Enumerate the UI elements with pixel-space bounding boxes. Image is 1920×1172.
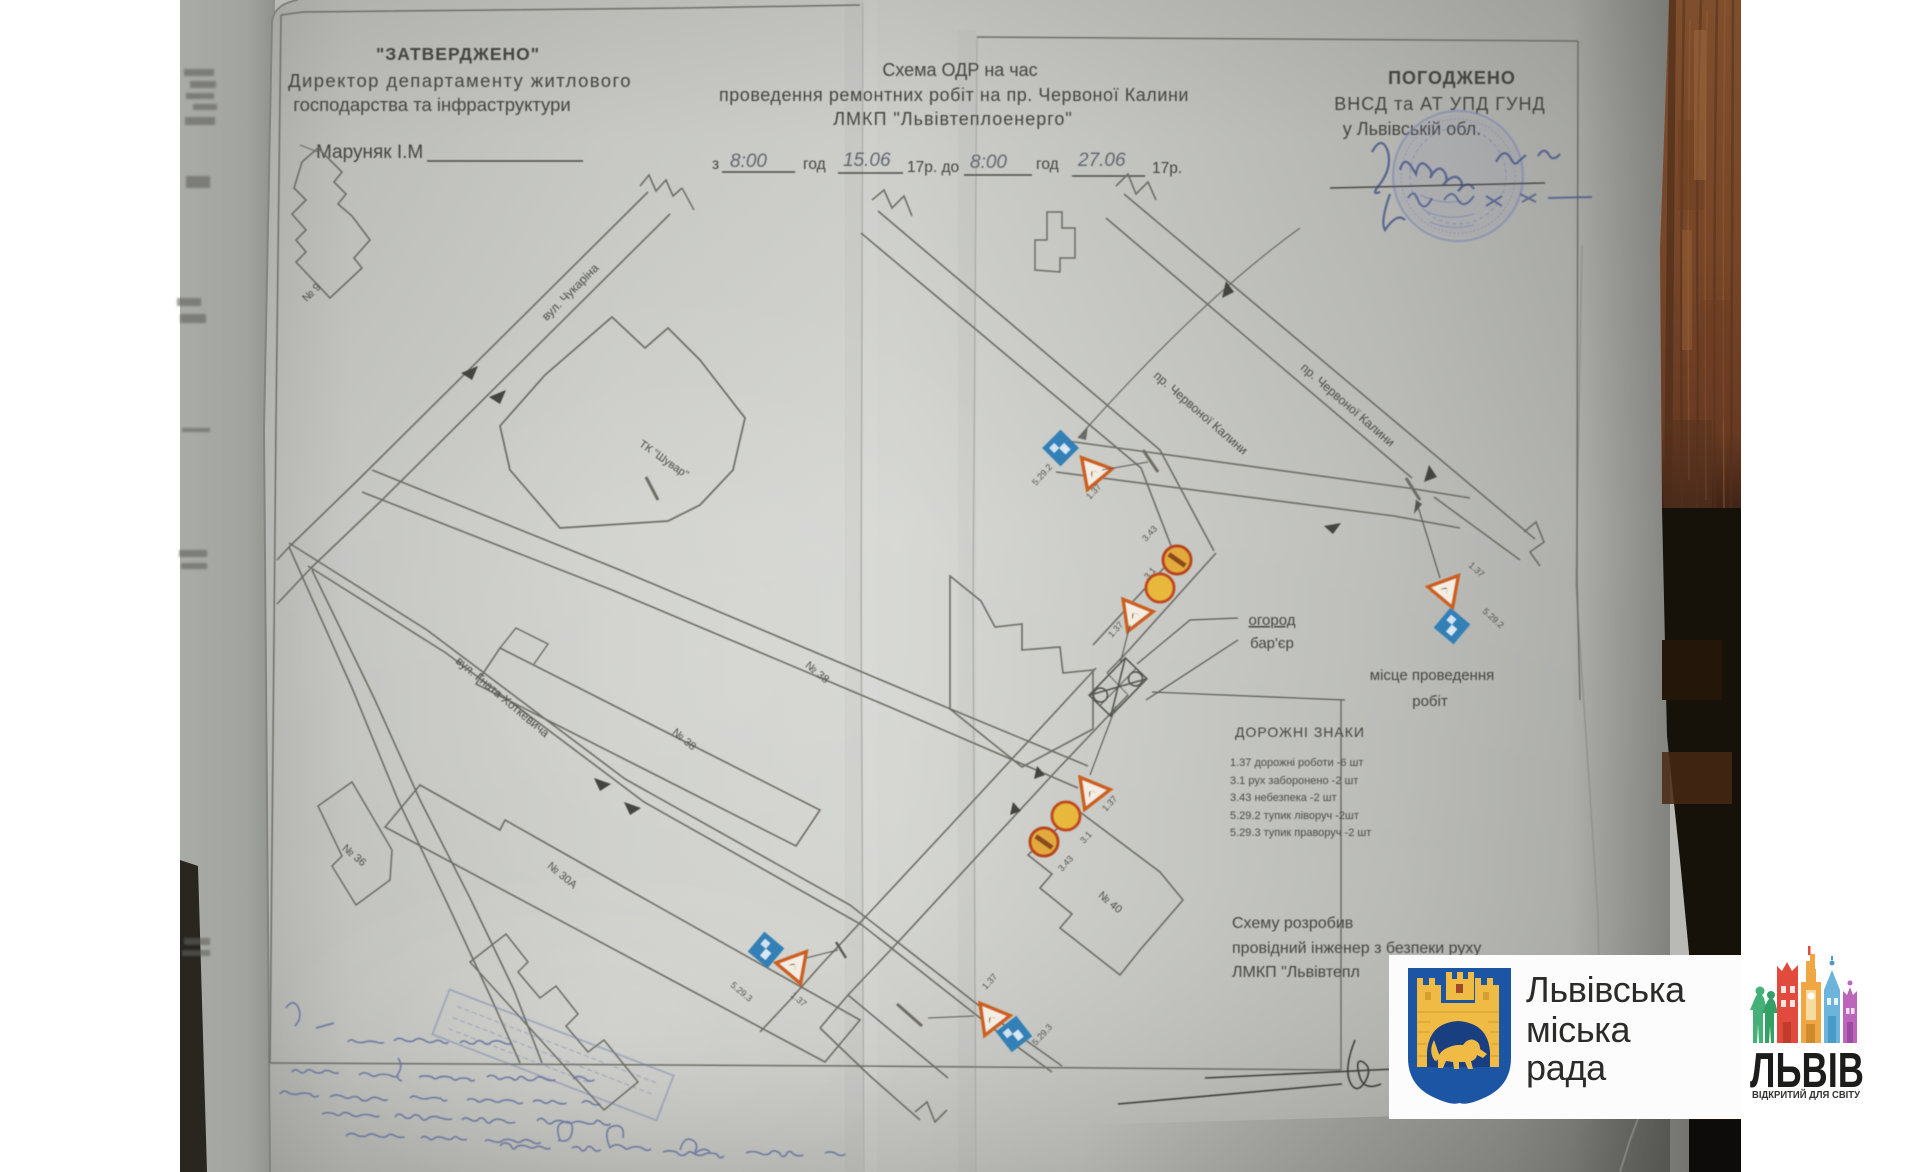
svg-text:міська: міська	[1526, 1009, 1632, 1050]
svg-text:провідний інженер з безпеки ру: провідний інженер з безпеки руху	[1232, 940, 1481, 957]
svg-text:5.29.2 тупик ліворуч -2шт: 5.29.2 тупик ліворуч -2шт	[1230, 810, 1359, 822]
svg-text:17р.: 17р.	[1152, 160, 1182, 177]
svg-text:ЛМКП "Львівтеплоенерго": ЛМКП "Львівтеплоенерго"	[833, 109, 1073, 129]
svg-text:ЛМКП "Львівтепл: ЛМКП "Львівтепл	[1232, 964, 1360, 981]
svg-text:місце проведення: місце проведення	[1370, 667, 1494, 684]
svg-text:3.43 небезпека -2 шт: 3.43 небезпека -2 шт	[1230, 792, 1337, 804]
svg-text:ВІДКРИТИЙ ДЛЯ СВІТУ: ВІДКРИТИЙ ДЛЯ СВІТУ	[1752, 1088, 1861, 1101]
svg-text:ДОРОЖНІ ЗНАКИ: ДОРОЖНІ ЗНАКИ	[1235, 724, 1365, 740]
svg-text:рада: рада	[1526, 1047, 1607, 1088]
svg-text:господарства та інфраструктури: господарства та інфраструктури	[293, 94, 570, 115]
svg-text:8:00: 8:00	[970, 152, 1007, 173]
svg-text:5.29.3 тупик праворуч -2 шт: 5.29.3 тупик праворуч -2 шт	[1230, 827, 1371, 839]
svg-text:огород: огород	[1249, 612, 1296, 629]
svg-text:27.06: 27.06	[1077, 150, 1126, 171]
svg-text:Львівська: Львівська	[1526, 969, 1686, 1010]
svg-text:ПОГОДЖЕНО: ПОГОДЖЕНО	[1388, 68, 1516, 88]
svg-text:год: год	[803, 156, 826, 173]
svg-text:бар'єр: бар'єр	[1250, 635, 1294, 652]
svg-text:Директор департаменту житловог: Директор департаменту житлового	[288, 70, 632, 91]
svg-text:з: з	[712, 156, 719, 173]
svg-text:проведення ремонтних робіт на: проведення ремонтних робіт на пр. Червон…	[719, 85, 1189, 105]
svg-text:Схема ОДР на час: Схема ОДР на час	[882, 60, 1037, 80]
svg-text:3.1 рух заборонено -2 шт: 3.1 рух заборонено -2 шт	[1230, 775, 1358, 787]
svg-text:"ЗАТВЕРДЖЕНО": "ЗАТВЕРДЖЕНО"	[376, 44, 540, 64]
svg-text:Схему розробив: Схему розробив	[1232, 915, 1353, 932]
svg-text:робіт: робіт	[1412, 693, 1448, 710]
svg-text:1.37 дорожні роботи -6 шт: 1.37 дорожні роботи -6 шт	[1230, 757, 1363, 769]
svg-text:8:00: 8:00	[730, 151, 767, 172]
svg-text:год: год	[1036, 156, 1059, 173]
svg-text:ВНСД та АТ УПД ГУНД: ВНСД та АТ УПД ГУНД	[1334, 94, 1545, 114]
svg-text:17р. до: 17р. до	[907, 159, 959, 176]
svg-text:Маруняк І.М: Маруняк І.М	[316, 142, 423, 163]
svg-text:15.06: 15.06	[843, 150, 891, 171]
